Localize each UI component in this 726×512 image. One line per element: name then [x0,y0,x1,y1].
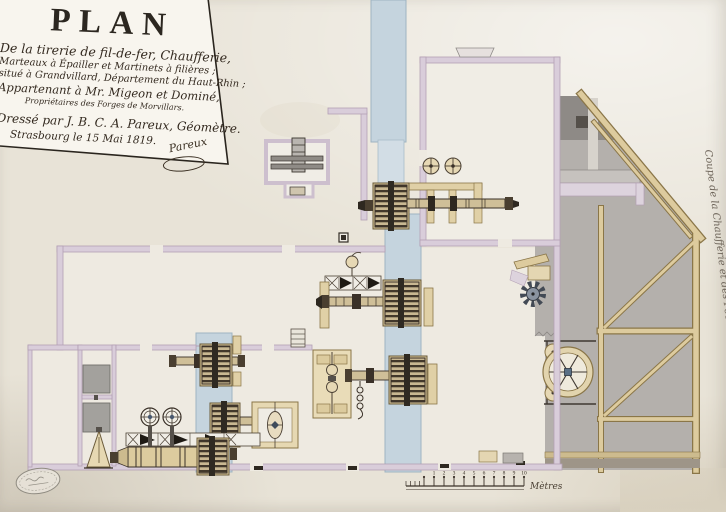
spoked-wheel [423,158,439,174]
hammer-drum [128,447,204,467]
stair-mark [291,329,305,347]
grindstone-wheel [163,408,181,426]
title-block: PLAN De la tirerie de fil-de-fer, Chauff… [0,2,216,150]
scale-tick-label: 4 [463,471,466,477]
water-wheel-gear [389,354,427,406]
section-label: Coupe de la Chaufferie et des Poêlons. [702,149,726,345]
water-wheel-gear [373,181,409,231]
scanned-plan-document: 1 2 3 4 5 6 7 8 9 10 Mètres Coupe de la … [0,0,726,512]
scale-tick-label: 5 [473,471,476,477]
grindstone-wheel [141,408,159,426]
scale-tick-label: 8 [503,471,506,477]
scale-tick-label: 7 [493,471,496,477]
anvil-row [126,433,260,446]
chimney-mark [576,116,588,128]
scale-tick-label: 3 [453,471,456,477]
scale-tick-label: 10 [521,471,527,477]
anvil-row [325,276,381,290]
scale-tick-label: 6 [483,471,486,477]
scale-unit-label: Mètres [529,481,563,492]
scale-tick-label: 2 [443,471,446,477]
scale-tick-label: 1 [433,471,436,477]
spoked-wheel [445,158,461,174]
water-wheel-gear [383,278,421,328]
scale-tick-label: 9 [513,471,516,477]
water-wheel-gear [200,342,232,388]
stove-slab [556,170,640,183]
furnace-plan [266,138,328,197]
water-wheel-gear [197,436,229,476]
scale-bar: 1 2 3 4 5 6 7 8 9 10 Mètres [406,471,563,493]
spoked-wheel-small [346,256,358,268]
